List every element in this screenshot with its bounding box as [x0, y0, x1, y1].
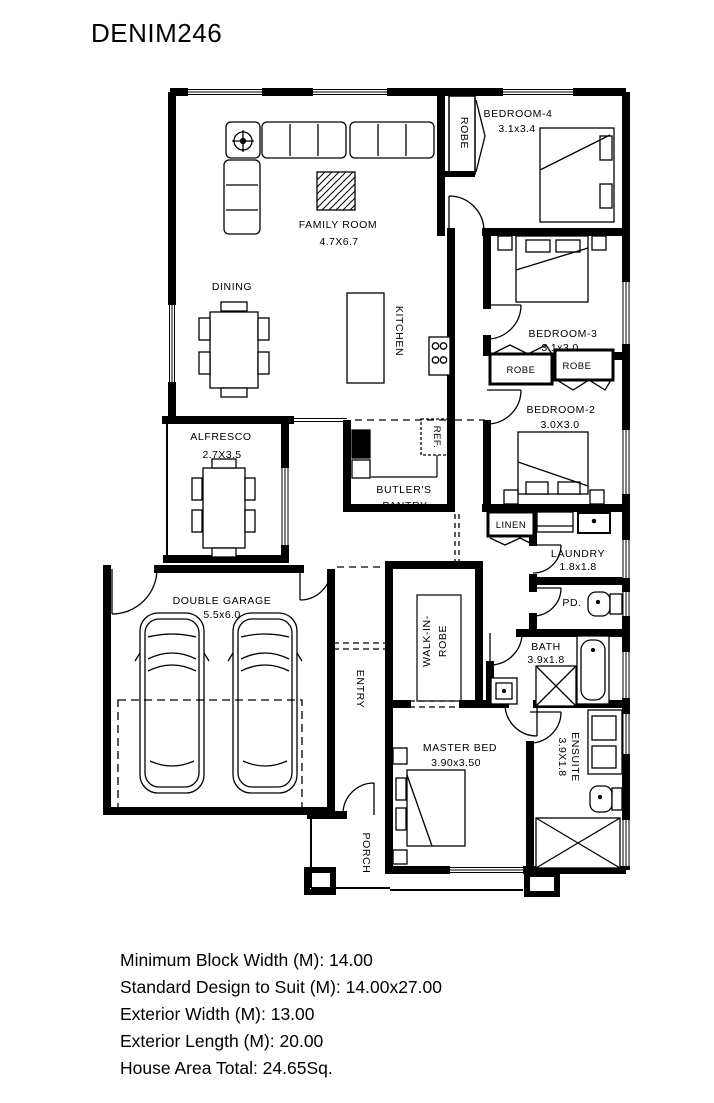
label-ensuite: ENSUITE	[569, 732, 581, 782]
garage-entry-door	[300, 569, 331, 600]
label-fridge: REF.	[431, 426, 442, 449]
laundry-bench	[537, 512, 610, 533]
label-wir-2: ROBE	[437, 625, 449, 657]
label-bath: BATH	[531, 641, 561, 653]
label-linen: LINEN	[496, 520, 526, 531]
bedroom3-door	[487, 305, 521, 339]
label-wir-1: WALK-IN-	[421, 615, 433, 667]
garage-side-door	[112, 569, 157, 614]
bedroom4-door	[449, 196, 484, 231]
dim-bath: 3.9x1.8	[527, 654, 564, 666]
dim-family-room: 4.7X6.7	[320, 236, 359, 248]
car-right	[228, 613, 302, 793]
bed3	[498, 236, 606, 302]
rear-pillar	[527, 874, 557, 894]
label-robe-right: ROBE	[563, 361, 592, 372]
dim-bedroom2: 3.0X3.0	[541, 419, 580, 431]
label-robe4: ROBE	[458, 117, 470, 149]
car-left	[135, 613, 209, 793]
dim-garage: 5.5x6.0	[203, 609, 240, 621]
linen-door-fold	[490, 538, 534, 545]
powder-door	[533, 588, 561, 616]
label-alfresco: ALFRESCO	[190, 431, 251, 443]
label-butlers-1: BUTLER'S	[376, 484, 431, 496]
kitchen-island	[347, 293, 384, 383]
bath-door	[490, 633, 522, 665]
spec-exterior-width: Exterior Width (M): 13.00	[120, 1004, 315, 1024]
spec-min-block-width: Minimum Block Width (M): 14.00	[120, 950, 373, 970]
pantry-cabinet	[352, 430, 370, 478]
dim-master: 3.90x3.50	[431, 757, 481, 769]
dim-laundry: 1.8x1.8	[559, 561, 596, 573]
cooktop	[429, 337, 450, 375]
spec-standard-design: Standard Design to Suit (M): 14.00x27.00	[120, 977, 442, 997]
label-dining: DINING	[212, 281, 252, 293]
alfresco-table	[192, 459, 255, 557]
plan-title: DENIM246	[91, 18, 222, 48]
spec-house-area: House Area Total: 24.65Sq.	[120, 1058, 333, 1078]
label-garage: DOUBLE GARAGE	[173, 595, 272, 607]
bedroom2-door	[487, 390, 521, 424]
dining-table	[199, 302, 269, 397]
dim-bedroom4: 3.1x3.4	[498, 123, 535, 135]
label-family-room: FAMILY ROOM	[299, 219, 378, 231]
dim-bedroom3: 3.1x3.0	[541, 342, 578, 354]
pantry-counter	[371, 455, 437, 477]
label-porch: PORCH	[360, 833, 372, 874]
dim-ensuite: 3.9X1.8	[556, 738, 568, 777]
label-kitchen: KITCHEN	[393, 306, 405, 356]
dim-alfresco: 2.7X3.5	[203, 449, 242, 461]
bed4	[540, 128, 614, 222]
floorplan-page: DENIM246 FAMILY ROOM 4.7X6.7 DINING KITC…	[0, 0, 714, 1103]
bed2	[504, 432, 604, 504]
powder-toilet	[588, 592, 622, 616]
label-bedroom4: BEDROOM-4	[484, 108, 553, 120]
label-entry: ENTRY	[354, 670, 366, 708]
front-door	[343, 783, 374, 815]
label-butlers-2: PANTRY	[382, 500, 427, 512]
label-master: MASTER BED	[423, 742, 497, 754]
label-laundry: LAUNDRY	[551, 548, 605, 560]
label-robe-left: ROBE	[507, 365, 536, 376]
label-bedroom3: BEDROOM-3	[529, 328, 598, 340]
rug-hatch	[317, 172, 355, 210]
label-bedroom2: BEDROOM-2	[527, 404, 596, 416]
label-powder: PD.	[562, 597, 581, 609]
spec-block: Minimum Block Width (M): 14.00 Standard …	[120, 950, 442, 1078]
spec-exterior-length: Exterior Length (M): 20.00	[120, 1031, 324, 1051]
floorplan-drawing: DENIM246 FAMILY ROOM 4.7X6.7 DINING KITC…	[0, 0, 714, 1103]
master-door	[505, 704, 537, 736]
